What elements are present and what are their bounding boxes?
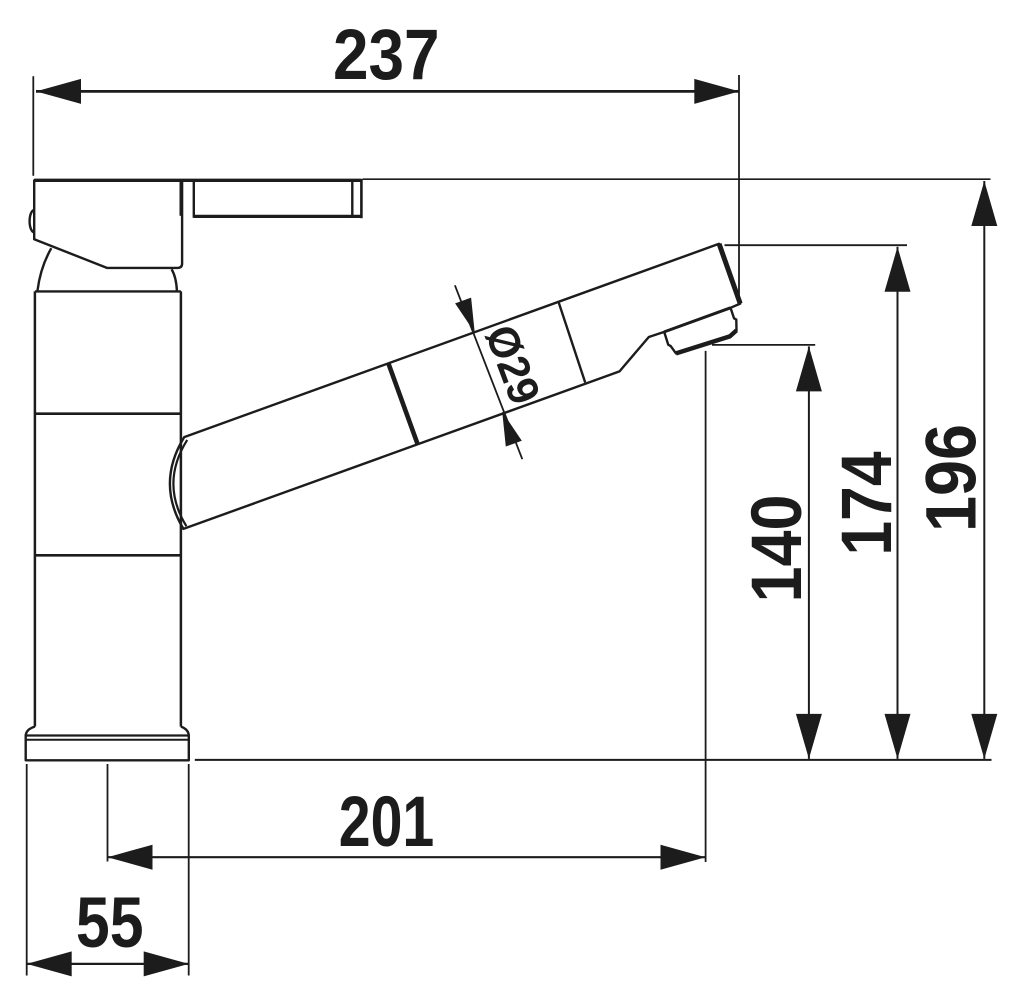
svg-text:140: 140 [738,495,817,603]
svg-text:237: 237 [333,16,440,95]
svg-text:196: 196 [912,424,991,532]
svg-text:174: 174 [828,451,907,555]
svg-text:55: 55 [76,884,144,963]
svg-text:201: 201 [339,783,435,862]
